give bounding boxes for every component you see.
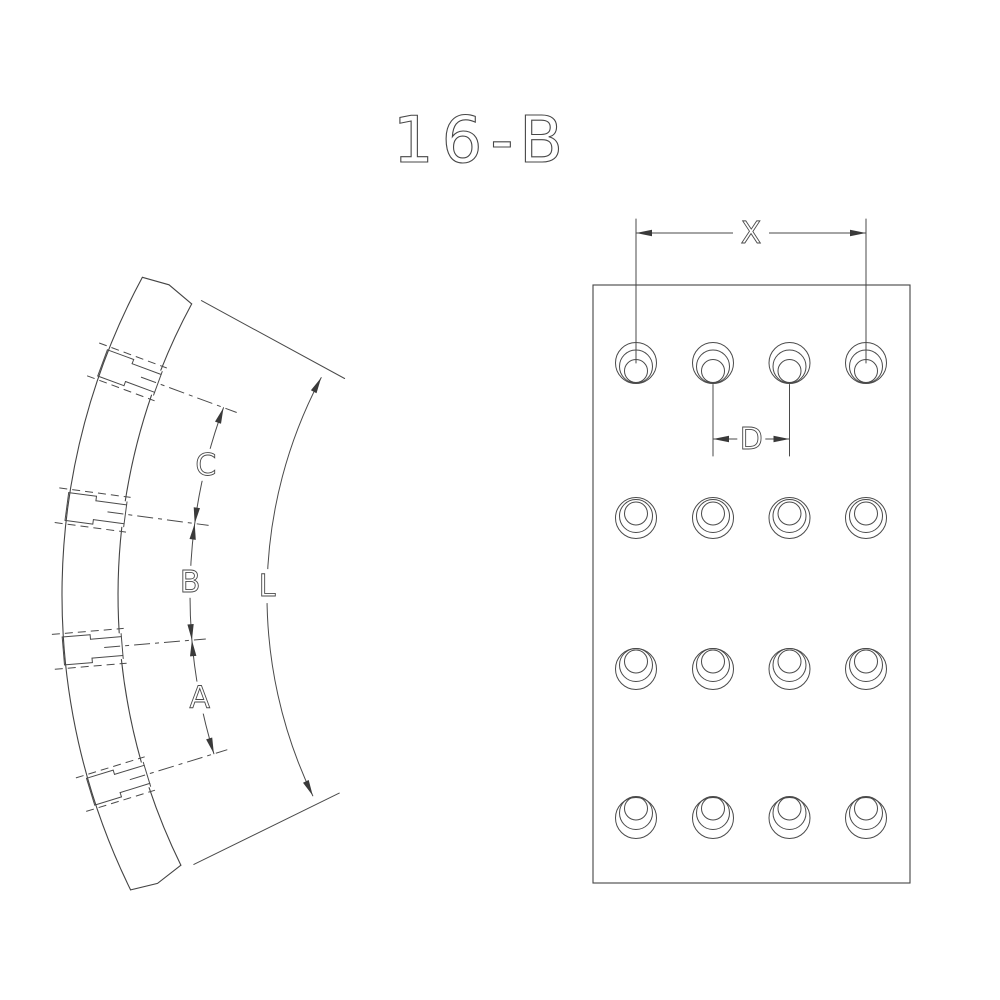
dim-label-l: L — [259, 569, 276, 604]
countersunk-hole — [769, 649, 810, 690]
hole-counterbore-circle — [773, 649, 806, 682]
hole-inner-circle — [702, 650, 725, 673]
countersunk-hole — [846, 797, 887, 839]
hole-inner-circle — [855, 502, 878, 525]
hole-outer-circle — [693, 649, 734, 690]
dim-label-b: B — [180, 565, 201, 600]
rivet-hole-side — [115, 765, 145, 774]
counterbore-shoulder — [113, 770, 114, 774]
hole-counterbore-circle — [697, 649, 730, 682]
rivet-hole-cap — [121, 634, 123, 659]
counterbore-side — [65, 663, 93, 665]
dimension-arrowhead — [190, 640, 196, 656]
hole-inner-circle — [855, 650, 878, 673]
dimension-arrowhead — [187, 624, 193, 640]
rivet-hole-side — [96, 501, 127, 505]
face-view-hole-grid: XD — [593, 216, 910, 883]
rivet-hole-cap — [143, 762, 150, 786]
hole-centerline — [141, 377, 237, 412]
lining-top-end-face — [142, 277, 191, 304]
page-title: 16-B — [393, 104, 571, 178]
hole-outer-circle — [769, 649, 810, 690]
countersunk-hole — [846, 498, 887, 539]
rivet-hole-section — [52, 628, 206, 669]
dimension-arrowhead — [206, 738, 214, 754]
lining-inner-arc-segment — [149, 788, 181, 866]
countersunk-hole — [616, 797, 657, 839]
hole-inner-circle — [778, 502, 801, 525]
rivet-hole-cap — [124, 502, 127, 527]
rivet-hole-side — [91, 637, 122, 640]
dimension-arrowhead — [774, 436, 790, 442]
counterbore-shoulder — [96, 496, 97, 501]
counterbore-shoulder — [120, 793, 121, 797]
countersunk-hole — [769, 498, 810, 539]
countersunk-hole — [693, 498, 734, 539]
hole-counterbore-circle — [697, 797, 730, 830]
rivet-hole-section — [76, 750, 227, 812]
lining-inner-arc-segment — [161, 304, 192, 370]
hole-counterbore-circle — [697, 350, 730, 383]
countersunk-hole — [616, 649, 657, 690]
lining-inner-arc-segment — [121, 660, 141, 763]
counterbore-shoulder — [93, 520, 94, 525]
hole-counterbore-circle — [850, 649, 883, 682]
dimension-arrowhead — [636, 230, 652, 236]
dimension-arrowhead — [850, 230, 866, 236]
dim-label-a: A — [190, 681, 211, 716]
countersunk-hole — [769, 797, 810, 839]
hole-inner-circle — [778, 797, 801, 820]
hole-outer-circle — [769, 343, 810, 384]
hole-inner-circle — [625, 650, 648, 673]
counterbore-side — [87, 770, 114, 778]
rivet-hole-side — [132, 364, 161, 375]
rivet-hole-side — [126, 382, 155, 393]
hole-counterbore-circle — [773, 797, 806, 830]
dimension-arrowhead — [303, 780, 313, 796]
hole-inner-circle — [625, 502, 648, 525]
hole-centerline — [104, 639, 206, 648]
hole-outer-circle — [846, 798, 887, 839]
hole-inner-circle — [625, 797, 648, 820]
hole-outer-circle — [693, 798, 734, 839]
hole-counterbore-circle — [850, 797, 883, 830]
lining-face-outline — [593, 285, 910, 883]
dim-label-d: D — [740, 422, 763, 457]
hole-inner-circle — [702, 360, 725, 383]
lining-inner-arc-segment — [125, 395, 151, 501]
rivet-hole-cap — [154, 372, 163, 396]
rivet-hole-section — [87, 343, 237, 413]
dimension-arrowhead — [190, 524, 196, 540]
counterbore-outer-edge — [87, 778, 95, 805]
drawing-canvas: 16-B CBAL XD — [0, 0, 1000, 1000]
dimension-arrowhead — [215, 408, 224, 424]
hole-outer-circle — [769, 798, 810, 839]
counterbore-side — [62, 635, 90, 637]
dimension-arrowhead — [194, 507, 200, 523]
countersunk-hole — [693, 797, 734, 839]
hole-outer-circle — [693, 343, 734, 384]
dim-label-x: X — [741, 216, 762, 251]
hole-inner-circle — [855, 797, 878, 820]
counterbore-shoulder — [132, 360, 134, 364]
lining-inner-arc-segment — [118, 527, 122, 633]
counterbore-side — [95, 797, 122, 805]
hole-inner-circle — [778, 360, 801, 383]
technical-drawing: 16-B CBAL XD — [0, 0, 1000, 1000]
countersunk-hole — [693, 649, 734, 690]
side-view-curved-lining: CBAL — [52, 277, 345, 890]
lining-bottom-end-face — [131, 865, 181, 890]
hole-counterbore-circle — [620, 797, 653, 830]
rivet-hole-side — [120, 783, 150, 792]
rivet-hole-side — [93, 520, 124, 524]
dimension-arrowhead — [713, 436, 729, 442]
hole-inner-circle — [702, 502, 725, 525]
hole-outer-circle — [616, 649, 657, 690]
counterbore-side — [65, 520, 93, 524]
hole-counterbore-circle — [620, 649, 653, 682]
counterbore-outer-edge — [98, 350, 108, 376]
rivet-hole-section — [55, 488, 209, 532]
counterbore-side — [69, 493, 97, 497]
countersunk-hole — [769, 343, 810, 384]
dimension-arrowhead — [311, 378, 321, 394]
hole-inner-circle — [702, 797, 725, 820]
hole-inner-circle — [778, 650, 801, 673]
length-extension-line — [194, 793, 339, 864]
dim-label-c: C — [195, 448, 216, 483]
countersunk-hole — [693, 343, 734, 384]
hole-counterbore-circle — [773, 350, 806, 383]
rivet-hole-side — [92, 656, 123, 659]
countersunk-hole — [846, 649, 887, 690]
hole-outer-circle — [616, 798, 657, 839]
counterbore-shoulder — [124, 382, 126, 386]
countersunk-hole — [616, 498, 657, 539]
hole-outer-circle — [846, 649, 887, 690]
length-extension-line — [201, 301, 344, 379]
